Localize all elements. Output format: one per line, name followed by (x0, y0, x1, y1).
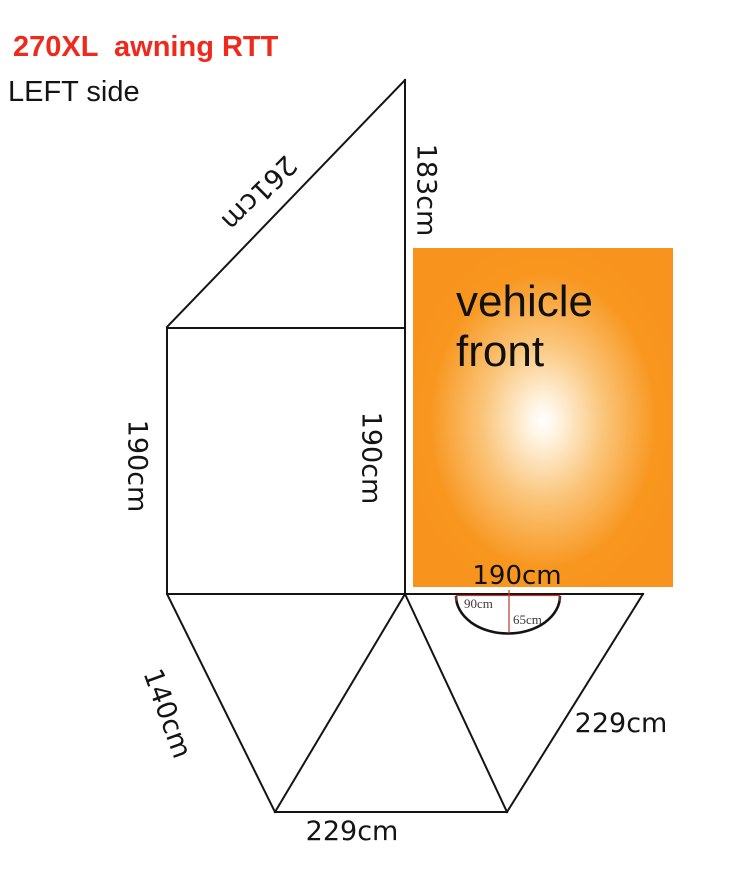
fan-left-edge-label: 140cm (137, 665, 198, 763)
vehicle-label-line1: vehicle (456, 277, 593, 326)
vehicle-front-block: vehicle front 190cm (413, 248, 673, 591)
fan-right-edge-label: 229cm (575, 708, 668, 739)
fan-left-line (167, 594, 275, 812)
vehicle-width-label: 190cm (472, 561, 561, 591)
diagram-canvas: 270XL awning RTT LEFT side vehicle front… (0, 0, 753, 879)
awning-diagram: vehicle front 190cm (0, 0, 753, 879)
roof-hypotenuse-line (167, 80, 405, 327)
door-width-label: 90cm (464, 596, 493, 611)
roof-hypotenuse-label: 261cm (215, 149, 302, 236)
door-arch: 90cm 65cm (456, 590, 560, 634)
rear-edge-label: 183cm (411, 144, 442, 237)
panel-inner-height-label: 190cm (356, 412, 387, 505)
fan-mid-right-line (405, 594, 507, 812)
fan-bottom-edge-label: 229cm (306, 816, 399, 847)
fan-mid-left-line (275, 594, 405, 812)
door-drop-label: 65cm (513, 612, 542, 627)
vehicle-label-line2: front (456, 327, 544, 376)
panel-outer-height-label: 190cm (122, 420, 153, 513)
